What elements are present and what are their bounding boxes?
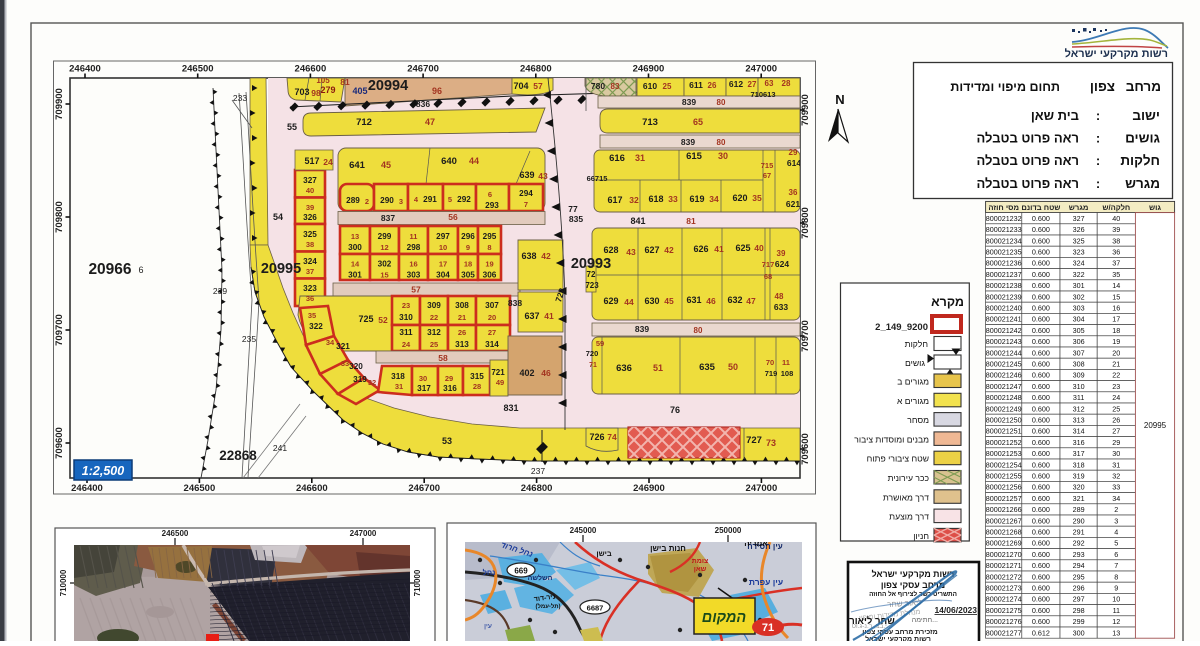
svg-text:321: 321 (1073, 494, 1085, 503)
svg-text:בית שאן: בית שאן (1031, 108, 1079, 123)
svg-text:305: 305 (1073, 326, 1085, 335)
svg-text:300: 300 (1073, 628, 1085, 637)
svg-text:47: 47 (746, 296, 756, 306)
svg-text:632: 632 (727, 295, 742, 305)
svg-text:2: 2 (1114, 505, 1118, 514)
svg-text:צפון: צפון (1090, 79, 1115, 94)
svg-text:9: 9 (466, 243, 470, 252)
svg-text:41: 41 (714, 244, 724, 254)
svg-text:5: 5 (1114, 539, 1118, 548)
svg-text:309: 309 (1073, 371, 1085, 380)
svg-text:614: 614 (787, 158, 801, 168)
svg-text:246900: 246900 (633, 64, 665, 75)
svg-text:תחום מיפוי ומדידות: תחום מיפוי ומדידות (950, 80, 1060, 94)
svg-text:305: 305 (461, 271, 475, 280)
svg-text:307: 307 (1073, 348, 1085, 357)
svg-text:320: 320 (1073, 483, 1085, 492)
svg-text:800021244: 800021244 (986, 348, 1022, 357)
svg-text:636: 636 (616, 363, 632, 374)
svg-text:80: 80 (717, 98, 726, 107)
svg-text:ככר עירונית: ככר עירונית (888, 473, 930, 483)
svg-text:(תל-עמל): (תל-עמל) (535, 602, 560, 610)
svg-text:44: 44 (624, 297, 634, 307)
svg-text:27: 27 (488, 328, 496, 337)
svg-text:621: 621 (786, 199, 800, 209)
svg-text:306: 306 (1073, 337, 1085, 346)
svg-text:34: 34 (326, 338, 335, 347)
svg-text:291: 291 (423, 195, 437, 204)
svg-text:0.600: 0.600 (1032, 516, 1050, 525)
svg-text:719: 719 (765, 369, 778, 378)
svg-text:23: 23 (1112, 382, 1120, 391)
svg-text:294: 294 (1073, 561, 1085, 570)
svg-text:800021235: 800021235 (986, 248, 1022, 257)
svg-text:השלשה: השלשה (528, 574, 553, 582)
svg-text:704: 704 (513, 81, 528, 91)
svg-text:49: 49 (496, 378, 504, 387)
svg-text:26: 26 (708, 81, 717, 90)
svg-text:800021257: 800021257 (986, 494, 1022, 503)
svg-text:0.600: 0.600 (1032, 270, 1050, 279)
svg-text:67: 67 (763, 171, 771, 180)
svg-text:0.600: 0.600 (1032, 561, 1050, 570)
svg-text:0.600: 0.600 (1032, 225, 1050, 234)
svg-text:326: 326 (303, 213, 317, 222)
svg-text:611: 611 (689, 80, 703, 90)
svg-text:800021272: 800021272 (986, 572, 1022, 581)
svg-text:13: 13 (351, 232, 359, 241)
svg-text:2_149_9200: 2_149_9200 (875, 322, 928, 333)
svg-text:22868: 22868 (219, 448, 257, 463)
svg-text:800021270: 800021270 (986, 550, 1022, 559)
svg-text:800021232: 800021232 (986, 214, 1022, 223)
svg-text:838: 838 (508, 298, 522, 308)
svg-text:48: 48 (775, 292, 784, 301)
svg-text:גוש: גוש (1149, 203, 1161, 212)
svg-text:71: 71 (589, 362, 597, 369)
svg-text:0.600: 0.600 (1032, 528, 1050, 537)
svg-text:405: 405 (352, 86, 367, 96)
svg-text:36: 36 (789, 188, 798, 197)
svg-text:מרחב: מרחב (1126, 79, 1161, 94)
svg-text:247000: 247000 (745, 64, 777, 75)
svg-text:45: 45 (664, 296, 674, 306)
svg-text:96: 96 (432, 86, 442, 96)
svg-text:22: 22 (1112, 371, 1120, 380)
svg-text:300: 300 (348, 243, 362, 252)
svg-text:293: 293 (1073, 550, 1085, 559)
svg-text:841: 841 (630, 216, 645, 226)
svg-text:42: 42 (541, 251, 551, 261)
svg-text:39: 39 (1112, 225, 1120, 234)
svg-text:27: 27 (1112, 427, 1120, 436)
svg-text:0.600: 0.600 (1032, 550, 1050, 559)
svg-text:318: 318 (1073, 460, 1085, 469)
svg-text:291: 291 (1073, 528, 1085, 537)
svg-text:0.600: 0.600 (1032, 483, 1050, 492)
svg-text:68: 68 (764, 272, 772, 281)
svg-text:800021233: 800021233 (986, 225, 1022, 234)
svg-text:780: 780 (591, 81, 605, 91)
svg-text:מגרש: מגרש (1069, 203, 1089, 212)
svg-text:800021245: 800021245 (986, 360, 1022, 369)
svg-text:38: 38 (1112, 236, 1120, 245)
svg-text:33: 33 (341, 359, 349, 368)
svg-text:0.600: 0.600 (1032, 438, 1050, 447)
svg-text:7: 7 (524, 200, 528, 209)
svg-text:25: 25 (430, 340, 438, 349)
svg-text:325: 325 (1073, 236, 1085, 245)
svg-text:800021271: 800021271 (986, 561, 1022, 570)
svg-text:0.600: 0.600 (1032, 337, 1050, 346)
svg-text:57: 57 (411, 285, 421, 295)
svg-text:619: 619 (689, 194, 704, 204)
svg-text:0.600: 0.600 (1032, 460, 1050, 469)
svg-text:709900: 709900 (54, 88, 65, 120)
svg-text:8: 8 (487, 243, 491, 252)
svg-text:28: 28 (782, 79, 791, 88)
svg-text:20994: 20994 (368, 78, 408, 94)
svg-text:חתימה...: חתימה... (912, 617, 938, 624)
svg-text:35: 35 (752, 193, 762, 203)
svg-text:20: 20 (1112, 348, 1120, 357)
svg-text:669: 669 (514, 567, 528, 576)
svg-text:74: 74 (607, 432, 617, 442)
svg-text:633: 633 (774, 302, 788, 312)
svg-text:800021246: 800021246 (986, 371, 1022, 380)
svg-text:836: 836 (416, 99, 430, 109)
svg-text:0.600: 0.600 (1032, 416, 1050, 425)
svg-text:304: 304 (1073, 315, 1085, 324)
svg-text:712: 712 (356, 117, 372, 128)
svg-text:73: 73 (766, 438, 776, 448)
svg-text:839: 839 (681, 137, 695, 147)
svg-text:308: 308 (455, 301, 469, 310)
svg-text:נחל: נחל (483, 568, 496, 577)
svg-text:246400: 246400 (71, 483, 103, 494)
svg-text:71: 71 (762, 622, 774, 634)
svg-text:41: 41 (544, 311, 554, 321)
svg-text::: : (1096, 153, 1100, 168)
svg-text:24: 24 (402, 340, 411, 349)
svg-text:76: 76 (670, 405, 680, 415)
svg-text:292: 292 (1073, 539, 1085, 548)
svg-text:31: 31 (635, 153, 645, 163)
svg-text:800021239: 800021239 (986, 292, 1022, 301)
svg-text:800021247: 800021247 (986, 382, 1022, 391)
svg-text:0.612: 0.612 (1032, 628, 1050, 637)
svg-text:324: 324 (303, 257, 317, 266)
svg-text:6: 6 (488, 190, 492, 199)
svg-text:17: 17 (1112, 315, 1120, 324)
svg-text:37: 37 (306, 267, 314, 276)
svg-text:298: 298 (1073, 606, 1085, 615)
svg-text:307: 307 (485, 301, 499, 310)
svg-text:245000: 245000 (570, 526, 597, 535)
svg-text:32: 32 (629, 195, 639, 205)
svg-text:16: 16 (1112, 304, 1120, 313)
svg-text:0.600: 0.600 (1032, 360, 1050, 369)
svg-text:837: 837 (381, 213, 395, 223)
svg-text:630: 630 (644, 296, 659, 306)
svg-text:616: 616 (609, 153, 625, 164)
svg-text:12: 12 (380, 243, 388, 252)
svg-text:800021267: 800021267 (986, 516, 1022, 525)
svg-text:0.600: 0.600 (1032, 539, 1050, 548)
svg-text:27: 27 (748, 80, 757, 89)
svg-text:631: 631 (686, 295, 701, 305)
svg-text:גושים: גושים (905, 358, 925, 368)
svg-text:800021266: 800021266 (986, 505, 1022, 514)
svg-text:239: 239 (213, 286, 227, 296)
svg-text:0.600: 0.600 (1032, 304, 1050, 313)
svg-text:617: 617 (607, 195, 622, 205)
svg-text:0.600: 0.600 (1032, 259, 1050, 268)
svg-text:308: 308 (1073, 360, 1085, 369)
svg-text:36: 36 (1112, 248, 1120, 257)
svg-text:N: N (835, 92, 844, 107)
svg-text:831: 831 (503, 403, 518, 413)
svg-text:800021277: 800021277 (986, 628, 1022, 637)
svg-text:40: 40 (754, 243, 764, 253)
svg-text:301: 301 (1073, 281, 1085, 290)
svg-text:108: 108 (781, 369, 794, 378)
svg-text:16: 16 (409, 260, 417, 269)
svg-text:313: 313 (1073, 416, 1085, 425)
svg-text:246500: 246500 (162, 529, 189, 538)
svg-text:מקרא: מקרא (931, 295, 964, 309)
svg-text:839: 839 (635, 324, 649, 334)
svg-text:15: 15 (380, 271, 388, 280)
svg-text:0.600: 0.600 (1032, 214, 1050, 223)
svg-text:0.600: 0.600 (1032, 472, 1050, 481)
svg-text:11: 11 (782, 358, 790, 367)
svg-text:0.600: 0.600 (1032, 617, 1050, 626)
svg-text:312: 312 (1073, 404, 1085, 413)
svg-text:23: 23 (402, 301, 410, 310)
svg-text:635: 635 (699, 362, 716, 373)
svg-text:800021254: 800021254 (986, 460, 1022, 469)
svg-text:311: 311 (1073, 393, 1084, 402)
svg-text:297: 297 (1073, 595, 1085, 604)
svg-text:התשריט כשר לצירוף אל החוזה: התשריט כשר לצירוף אל החוזה (869, 590, 957, 598)
svg-text:629: 629 (603, 296, 618, 306)
svg-text:800021240: 800021240 (986, 304, 1022, 313)
svg-text:34: 34 (1112, 494, 1120, 503)
svg-text:42: 42 (664, 245, 674, 255)
svg-text:30: 30 (1112, 449, 1120, 458)
svg-text:37: 37 (1112, 259, 1120, 268)
svg-text:246700: 246700 (408, 483, 440, 494)
svg-text:289: 289 (1073, 505, 1085, 514)
svg-text:235: 235 (242, 334, 256, 344)
svg-text:800021234: 800021234 (986, 236, 1022, 245)
svg-text:279: 279 (320, 85, 335, 95)
svg-text:323: 323 (1073, 248, 1085, 257)
svg-text:301: 301 (348, 271, 362, 280)
svg-text:35: 35 (308, 311, 316, 320)
svg-text:דרך מוצעת: דרך מוצעת (889, 512, 929, 522)
svg-text:800021269: 800021269 (986, 539, 1022, 548)
svg-text:800021273: 800021273 (986, 584, 1022, 593)
svg-text:72: 72 (587, 270, 596, 279)
svg-text:14: 14 (1112, 281, 1120, 290)
svg-text:19: 19 (485, 260, 493, 269)
svg-text:246800: 246800 (521, 483, 553, 494)
svg-text:שטח בדונם: שטח בדונם (1021, 203, 1060, 212)
svg-text:57: 57 (533, 81, 543, 91)
svg-text:800021249: 800021249 (986, 404, 1022, 413)
svg-text:247000: 247000 (350, 529, 377, 538)
svg-text:0.600: 0.600 (1032, 292, 1050, 301)
svg-text:835: 835 (569, 214, 583, 224)
svg-text:295: 295 (483, 232, 497, 241)
svg-text:314: 314 (1073, 427, 1085, 436)
svg-text:40: 40 (1112, 214, 1120, 223)
svg-text:80: 80 (717, 138, 726, 147)
svg-text:246700: 246700 (407, 64, 439, 75)
svg-text:חלקות: חלקות (1120, 153, 1160, 168)
svg-text:625: 625 (735, 243, 750, 253)
svg-text:628: 628 (603, 245, 618, 255)
svg-text:624: 624 (775, 259, 789, 269)
svg-text:חנות בישן: חנות בישן (650, 544, 686, 553)
svg-text:10: 10 (1112, 595, 1120, 604)
svg-text:מגורים ב: מגורים ב (897, 377, 929, 387)
svg-text:324: 324 (1073, 259, 1085, 268)
svg-text:14: 14 (351, 260, 360, 269)
svg-text:שאן: שאן (694, 566, 707, 573)
svg-text:319: 319 (353, 375, 367, 384)
svg-text:800021243: 800021243 (986, 337, 1022, 346)
svg-text:320: 320 (349, 362, 363, 371)
svg-text:8: 8 (1114, 572, 1118, 581)
svg-text:0.600: 0.600 (1032, 248, 1050, 257)
svg-text:296: 296 (461, 232, 475, 241)
svg-text:36: 36 (306, 294, 314, 303)
svg-text:29: 29 (445, 374, 453, 383)
svg-text:246600: 246600 (295, 64, 327, 75)
svg-text:חלקה/ש: חלקה/ש (1102, 203, 1130, 212)
svg-text:18: 18 (464, 260, 472, 269)
svg-text:246800: 246800 (520, 64, 552, 75)
svg-text:24: 24 (323, 157, 333, 167)
svg-text:65: 65 (693, 117, 703, 127)
svg-text:313: 313 (455, 340, 469, 349)
svg-text:ראה פרוט בטבלה: ראה פרוט בטבלה (977, 176, 1079, 191)
svg-text:מזכירת מרחב עסקי צפון: מזכירת מרחב עסקי צפון (862, 629, 937, 636)
svg-text:715: 715 (761, 161, 774, 170)
svg-text:31: 31 (1112, 460, 1120, 469)
svg-text:רשות מקרקעי ישראל: רשות מקרקעי ישראל (872, 569, 955, 579)
svg-text:54: 54 (273, 212, 283, 222)
svg-text:9: 9 (1114, 584, 1118, 593)
svg-text:51: 51 (653, 363, 663, 373)
svg-text:5: 5 (448, 195, 452, 204)
svg-text:709700: 709700 (54, 314, 65, 346)
svg-text:800021238: 800021238 (986, 281, 1022, 290)
svg-text:237: 237 (531, 466, 545, 476)
svg-text:38: 38 (306, 240, 314, 249)
svg-text:0.600: 0.600 (1032, 595, 1050, 604)
svg-text:14/06/2023: 14/06/2023 (934, 605, 977, 615)
svg-text:317: 317 (417, 384, 431, 393)
svg-text:25: 25 (663, 82, 672, 91)
svg-text:26: 26 (1112, 416, 1120, 425)
svg-text:44: 44 (469, 156, 479, 166)
svg-text:839: 839 (682, 97, 696, 107)
svg-text:58: 58 (438, 353, 448, 363)
svg-text:627: 627 (644, 245, 659, 255)
svg-text:15: 15 (1112, 292, 1120, 301)
svg-text:322: 322 (309, 322, 323, 331)
svg-text:0.600: 0.600 (1032, 315, 1050, 324)
svg-text:304: 304 (436, 271, 450, 280)
svg-text:צומת: צומת (692, 558, 708, 565)
svg-text:326: 326 (1073, 225, 1085, 234)
svg-text:45: 45 (381, 160, 391, 170)
svg-text:327: 327 (1073, 214, 1085, 223)
svg-text:639: 639 (519, 170, 534, 180)
svg-text:250000: 250000 (715, 526, 742, 535)
svg-text:חלקות: חלקות (905, 339, 928, 349)
svg-text:637: 637 (524, 311, 539, 321)
svg-text:723: 723 (585, 281, 599, 290)
svg-text:727: 727 (746, 435, 762, 446)
svg-text:246500: 246500 (184, 483, 216, 494)
svg-text:דרך מאושרת: דרך מאושרת (883, 492, 929, 502)
svg-text:517: 517 (304, 156, 319, 166)
svg-text:299: 299 (1073, 617, 1085, 626)
svg-text:620: 620 (732, 193, 747, 203)
svg-text:80: 80 (694, 326, 703, 335)
svg-text:3: 3 (1114, 516, 1118, 525)
svg-text:323: 323 (303, 284, 317, 293)
svg-text:306: 306 (483, 271, 497, 280)
svg-text:800021248: 800021248 (986, 393, 1022, 402)
svg-text:233: 233 (233, 93, 247, 103)
svg-text:800021253: 800021253 (986, 449, 1022, 458)
svg-text:0.600: 0.600 (1032, 606, 1050, 615)
svg-text:0.600: 0.600 (1032, 326, 1050, 335)
svg-text:0.600: 0.600 (1032, 236, 1050, 245)
svg-text:29: 29 (789, 148, 798, 157)
svg-text::: : (1096, 131, 1100, 146)
svg-text:20995: 20995 (261, 261, 301, 277)
svg-text:30: 30 (718, 151, 728, 161)
svg-text:310: 310 (399, 313, 413, 322)
svg-text:מסחר: מסחר (907, 415, 929, 425)
svg-text:33: 33 (1112, 483, 1120, 492)
svg-text:246400: 246400 (69, 64, 101, 75)
svg-text:21: 21 (458, 313, 466, 322)
svg-text:246900: 246900 (633, 483, 665, 494)
svg-text:800021276: 800021276 (986, 617, 1022, 626)
svg-text:52: 52 (378, 315, 388, 325)
svg-text:56: 56 (448, 212, 458, 222)
svg-text:0.600: 0.600 (1032, 404, 1050, 413)
svg-text:800021252: 800021252 (986, 438, 1022, 447)
svg-text:296: 296 (1073, 584, 1085, 593)
svg-text:שטח ציבורי פתוח: שטח ציבורי פתוח (867, 454, 929, 464)
svg-text:325: 325 (303, 230, 317, 239)
svg-text:726: 726 (589, 432, 604, 442)
svg-text:720: 720 (586, 349, 599, 358)
svg-text:11: 11 (1113, 606, 1120, 615)
svg-text:חניון: חניון (913, 531, 929, 541)
svg-text:800021237: 800021237 (986, 270, 1022, 279)
svg-text:246600: 246600 (296, 483, 328, 494)
